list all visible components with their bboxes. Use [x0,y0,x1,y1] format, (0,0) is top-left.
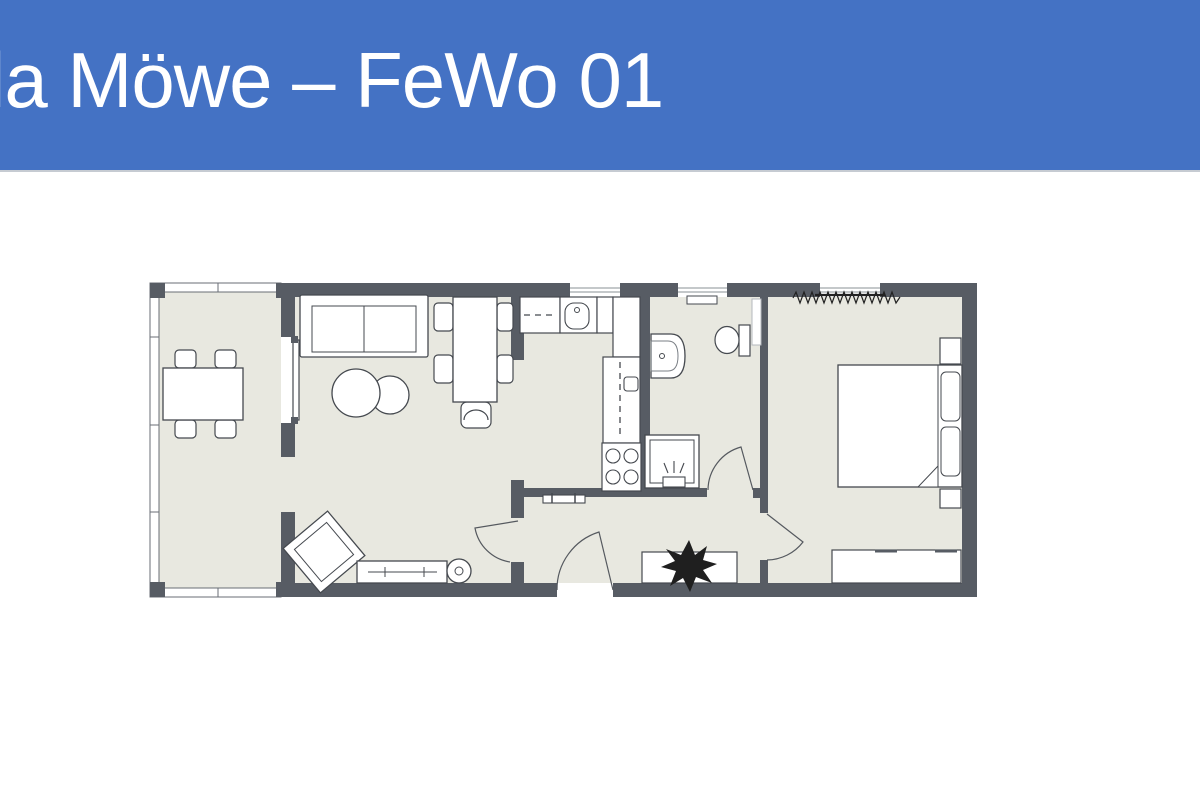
bedroom-dresser [832,550,961,583]
kitchen-tall-cabinet [613,297,640,357]
pillow [941,372,960,421]
wall-exterior-right [962,283,977,597]
dining-chair [497,303,513,331]
kitchen-sink [565,303,589,329]
bath-windowsill [687,296,717,304]
dining-chair [434,303,453,331]
glass-door-post [291,336,298,343]
front-door-opening [557,583,613,597]
sunroom-chair [215,420,236,438]
sunroom-chair [175,420,196,438]
sunroom-chair [175,350,196,368]
dining-table [453,297,497,402]
window-bathroom [678,283,727,297]
hall-radiator [543,495,585,503]
sunroom-window-wall-left [150,283,159,597]
floor-passage-gap [281,457,295,512]
sunroom-table [163,368,243,420]
wall-living-hall-upper [511,480,524,518]
dining-chair [497,355,513,383]
wall-living-west-b [281,423,295,457]
sunroom-chair [215,350,236,368]
toilet-bowl [715,327,739,354]
floor-sunroom [159,292,281,588]
nightstand-bottom [940,489,961,508]
dining-chair [434,355,453,383]
glass-door-post [291,417,298,424]
coffee-table-large [332,369,380,417]
wall-exterior-bottom-right [613,583,977,597]
sunroom-window-wall-bottom [159,588,281,597]
slide: { "header": { "title": "la Möwe – FeWo 0… [0,0,1200,800]
wall-living-west-a [281,283,295,337]
kitchen-small-appliance [624,377,638,391]
kitchen-counter [597,297,613,333]
slide-title-bar: la Möwe – FeWo 01 [0,0,1200,172]
stool-center [455,567,463,575]
shower-head [663,477,685,487]
nightstand-top [940,338,961,364]
glass-door-leaf [293,340,299,420]
kitchen-counter-strip [603,357,640,443]
sunroom-corner-post [150,283,165,298]
wall-living-hall-stub [511,562,524,583]
sunroom-window-wall-top [159,283,281,292]
pillow [941,427,960,476]
sunroom-corner-post [150,582,165,597]
wall-bedroom-west-b [760,560,768,587]
bath-niche [752,299,761,345]
window-kitchen [570,283,620,297]
toilet-tank [739,325,750,356]
slide-title: la Möwe – FeWo 01 [0,35,663,126]
